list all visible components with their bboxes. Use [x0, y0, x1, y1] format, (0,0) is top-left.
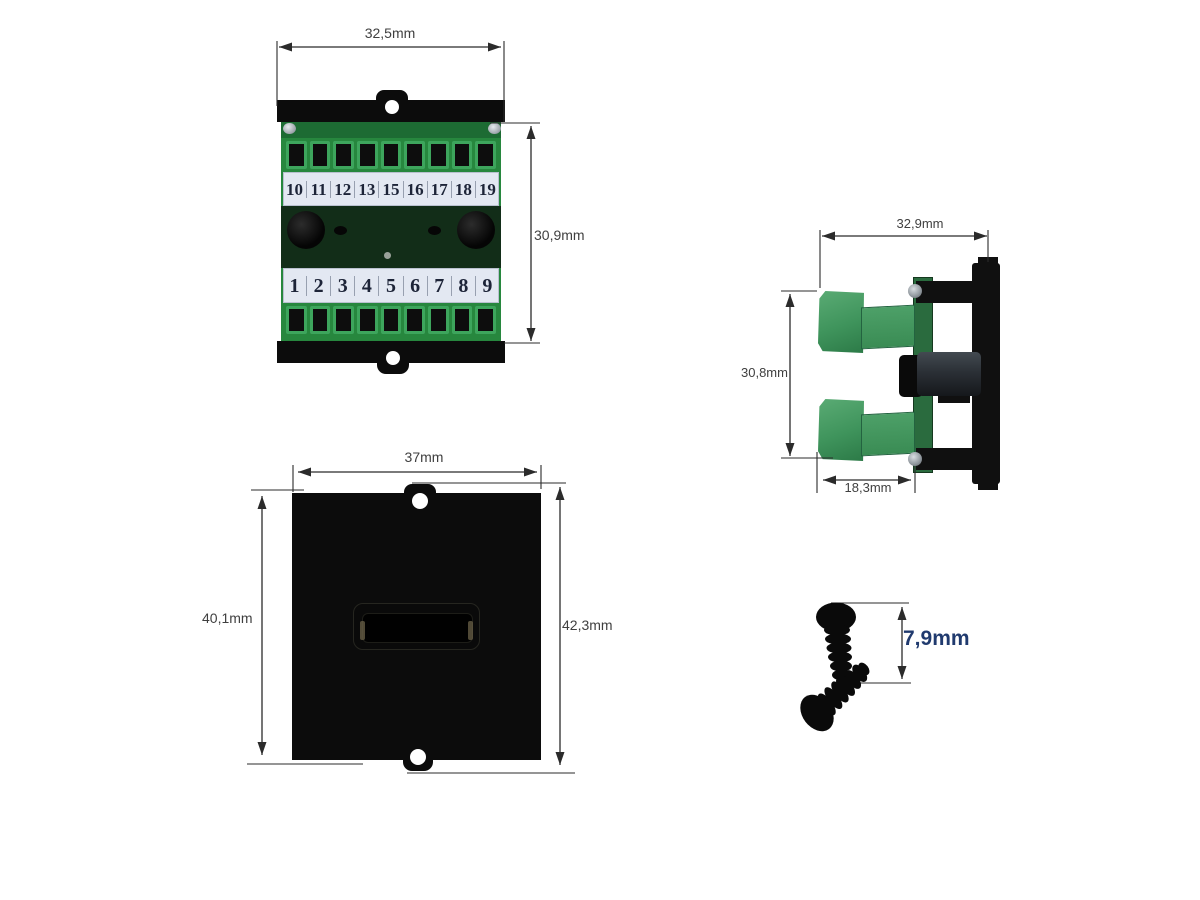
pcb-component: [334, 226, 347, 235]
front-bottom-mounting-hole: [410, 749, 426, 765]
dim-label-rear-width: 32,5mm: [352, 26, 428, 40]
terminal-slot: [452, 141, 473, 169]
terminal-slot: [475, 306, 496, 334]
dim-label-side-height: 30,8mm: [741, 366, 788, 379]
side-screw-top: [908, 284, 922, 298]
dimension-lines-layer: [0, 0, 1200, 900]
terminal-slot: [310, 306, 331, 334]
terminal-label-strip-top: 10 11 12 13 15 16 17 18 19: [283, 172, 499, 206]
terminal-row-top: [281, 138, 501, 172]
terminal-slot: [357, 306, 378, 334]
terminal-slot: [452, 306, 473, 334]
terminal-connector-side-bottom: [861, 412, 915, 457]
side-screw-bottom: [908, 452, 922, 466]
dim-label-side-width: 32,9mm: [884, 217, 956, 230]
terminal-slot: [333, 141, 354, 169]
terminal-number: 5: [378, 276, 402, 296]
terminal-number: 13: [354, 181, 378, 198]
terminal-number: 1: [283, 276, 306, 296]
hdmi-connector-body: [917, 352, 981, 396]
corner-screw-left: [283, 123, 296, 134]
terminal-slot: [475, 141, 496, 169]
adjuster-knob-right: [457, 211, 495, 249]
terminal-number: 11: [306, 181, 330, 198]
terminal-number: 7: [427, 276, 451, 296]
dim-label-front-height-right: 42,3mm: [562, 618, 613, 632]
adjuster-knob-left: [287, 211, 325, 249]
terminal-slot: [428, 306, 449, 334]
front-top-mounting-hole: [412, 493, 428, 509]
side-frame-arm-top: [916, 281, 976, 303]
terminal-block-side-top: [818, 291, 864, 353]
terminal-number: 17: [427, 181, 451, 198]
terminal-slot: [286, 306, 307, 334]
hdmi-pin-right: [468, 621, 473, 640]
rear-bottom-mounting-hole: [386, 351, 400, 365]
rear-top-mounting-hole: [385, 100, 399, 114]
terminal-slot: [404, 306, 425, 334]
terminal-slot: [381, 141, 402, 169]
terminal-slot: [428, 141, 449, 169]
terminal-number: 16: [403, 181, 427, 198]
terminal-number: 10: [283, 181, 306, 198]
hdmi-port: [353, 603, 480, 650]
terminal-slot: [286, 141, 307, 169]
terminal-block-side-bottom: [818, 399, 864, 461]
dim-label-side-depth: 18,3mm: [838, 481, 898, 494]
terminal-slot: [333, 306, 354, 334]
terminal-number: 6: [403, 276, 427, 296]
pcb-component: [428, 226, 441, 235]
terminal-number: 4: [354, 276, 378, 296]
hdmi-pin-left: [360, 621, 365, 640]
terminal-number: 3: [330, 276, 354, 296]
terminal-number: 9: [475, 276, 499, 296]
terminal-slot: [357, 141, 378, 169]
pcb-led: [384, 252, 391, 259]
dim-label-rear-height: 30,9mm: [534, 228, 585, 242]
corner-screw-right: [488, 123, 501, 134]
dim-label-front-width: 37mm: [392, 450, 456, 464]
hdmi-slot: [362, 613, 473, 643]
terminal-number: 15: [378, 181, 402, 198]
screw-icon: [793, 656, 883, 738]
terminal-row-bottom: [281, 303, 501, 337]
technical-drawing-canvas: 10 11 12 13 15 16 17 18 19 1 2 3 4 5 6 7…: [0, 0, 1200, 900]
terminal-slot: [404, 141, 425, 169]
terminal-number: 18: [451, 181, 475, 198]
terminal-number: 12: [330, 181, 354, 198]
terminal-number: 2: [306, 276, 330, 296]
terminal-label-strip-bottom: 1 2 3 4 5 6 7 8 9: [283, 268, 499, 303]
terminal-number: 8: [451, 276, 475, 296]
terminal-connector-side-top: [861, 305, 915, 350]
rear-top-green-strip: [281, 122, 501, 138]
screw-icon: [816, 603, 856, 686]
dim-label-front-height-left: 40,1mm: [202, 611, 253, 625]
side-frame-arm-bottom: [916, 448, 976, 470]
terminal-slot: [381, 306, 402, 334]
dim-label-screw-length: 7,9mm: [903, 628, 970, 649]
terminal-number: 19: [475, 181, 499, 198]
terminal-slot: [310, 141, 331, 169]
